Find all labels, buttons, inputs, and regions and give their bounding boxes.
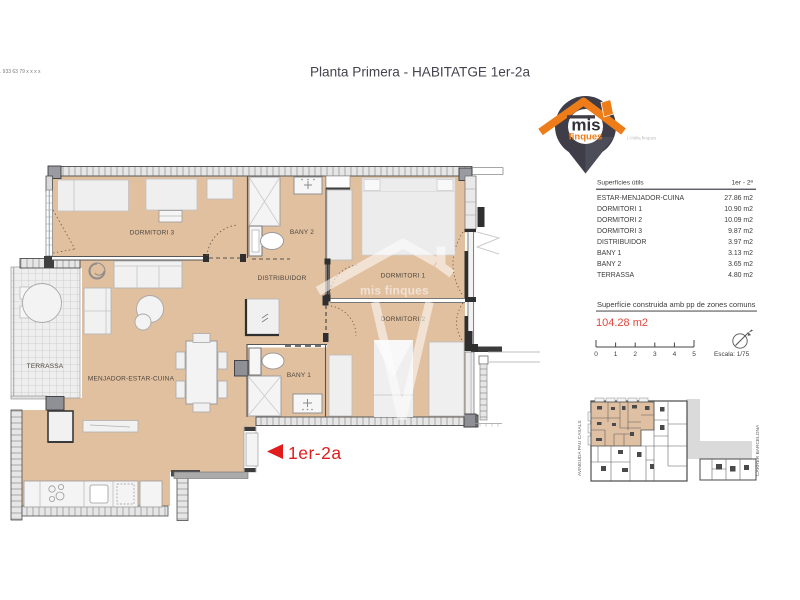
svg-text:9.87 m2: 9.87 m2 [728,228,753,235]
svg-text:DISTRIBUIDOR: DISTRIBUIDOR [597,239,646,246]
svg-text:Superfície construida amb pp d: Superfície construida amb pp de zones co… [597,300,756,309]
svg-text:DORMITORI 2: DORMITORI 2 [381,316,426,323]
svg-text:1: 1 [614,351,618,358]
svg-text:Superfícies útils: Superfícies útils [597,180,644,187]
svg-text:DISTRIBUIDOR: DISTRIBUIDOR [258,275,307,282]
svg-text:2: 2 [633,351,637,358]
svg-text:10.09 m2: 10.09 m2 [724,217,753,224]
svg-text:3.65 m2: 3.65 m2 [728,261,753,268]
svg-text:DORMITORI 1: DORMITORI 1 [381,273,426,280]
svg-text:DORMITORI 1: DORMITORI 1 [597,206,642,213]
svg-text:10.90 m2: 10.90 m2 [724,206,753,213]
svg-text:Escala: 1/75: Escala: 1/75 [714,351,750,358]
svg-text:el. 933 63 79 x x x x: el. 933 63 79 x x x x [0,69,41,75]
svg-text:AVINGUDA PAU CASALS: AVINGUDA PAU CASALS [577,420,583,476]
svg-text:TERRASSA: TERRASSA [597,272,635,279]
svg-text:1er - 2ª: 1er - 2ª [732,180,754,187]
svg-text:finques: finques [569,132,603,143]
svg-text:Planta Primera - HABITATGE 1er: Planta Primera - HABITATGE 1er-2a [310,65,531,80]
svg-text:0: 0 [594,351,598,358]
svg-text:TERRASSA: TERRASSA [27,363,64,370]
svg-text:BANY 1: BANY 1 [287,372,311,379]
svg-text:4: 4 [673,351,677,358]
svg-text:DORMITORI 3: DORMITORI 3 [130,230,175,237]
svg-text:mis finques: mis finques [360,284,429,298]
svg-text:3.13 m2: 3.13 m2 [728,250,753,257]
svg-text:3.97 m2: 3.97 m2 [728,239,753,246]
svg-text:ESTAR-MENJADOR-CUINA: ESTAR-MENJADOR-CUINA [597,195,685,202]
svg-text:MENJADOR-ESTAR-CUINA: MENJADOR-ESTAR-CUINA [88,376,175,383]
svg-text:5: 5 [692,351,696,358]
svg-text:L'Hèlia finques: L'Hèlia finques [627,136,657,141]
svg-text:DORMITORI 3: DORMITORI 3 [597,228,642,235]
svg-text:104.28 m2: 104.28 m2 [596,317,648,329]
svg-text:BANY 2: BANY 2 [597,261,622,268]
svg-text:BANY 1: BANY 1 [597,250,622,257]
svg-text:DORMITORI 2: DORMITORI 2 [597,217,642,224]
svg-text:27.86 m2: 27.86 m2 [724,195,753,202]
svg-text:BANY 2: BANY 2 [290,229,314,236]
svg-text:4.80 m2: 4.80 m2 [728,272,753,279]
svg-text:3: 3 [653,351,657,358]
svg-text:CARRER BARCELONA: CARRER BARCELONA [755,424,761,476]
svg-text:1er-2a: 1er-2a [288,443,342,463]
